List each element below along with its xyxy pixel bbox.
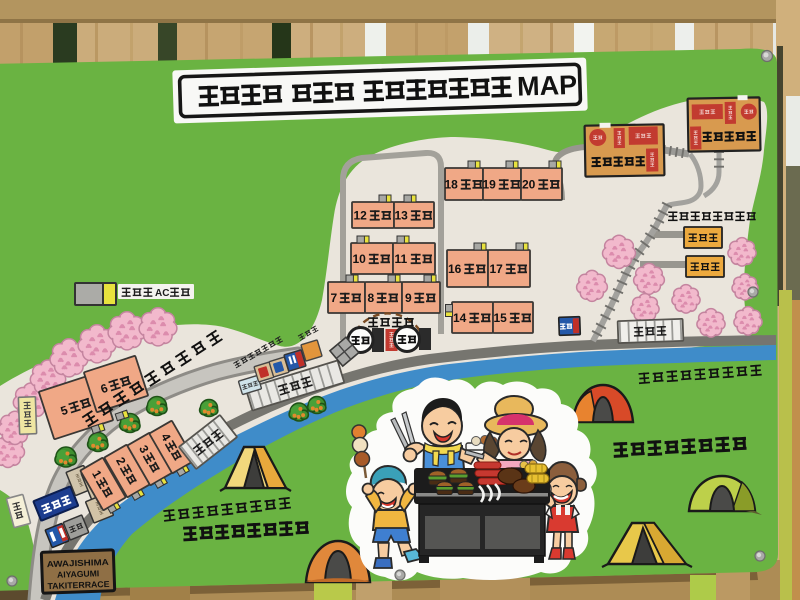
svg-text:7: 7: [330, 291, 337, 305]
svg-text:8: 8: [367, 291, 374, 305]
svg-text:10: 10: [352, 252, 366, 266]
svg-text:MAP: MAP: [517, 70, 578, 102]
svg-text:9: 9: [405, 291, 412, 305]
svg-text:14: 14: [453, 311, 467, 325]
svg-text:17: 17: [489, 262, 503, 276]
svg-text:11: 11: [394, 252, 407, 266]
svg-text:20: 20: [522, 178, 536, 192]
svg-text:12: 12: [353, 209, 367, 223]
svg-text:AC: AC: [155, 288, 169, 299]
svg-text:18: 18: [444, 178, 458, 192]
svg-text:AIYAGUMI: AIYAGUMI: [57, 568, 100, 579]
svg-text:19: 19: [482, 178, 496, 192]
svg-text:13: 13: [394, 209, 408, 223]
svg-text:15: 15: [493, 311, 507, 325]
svg-text:16: 16: [448, 262, 462, 276]
